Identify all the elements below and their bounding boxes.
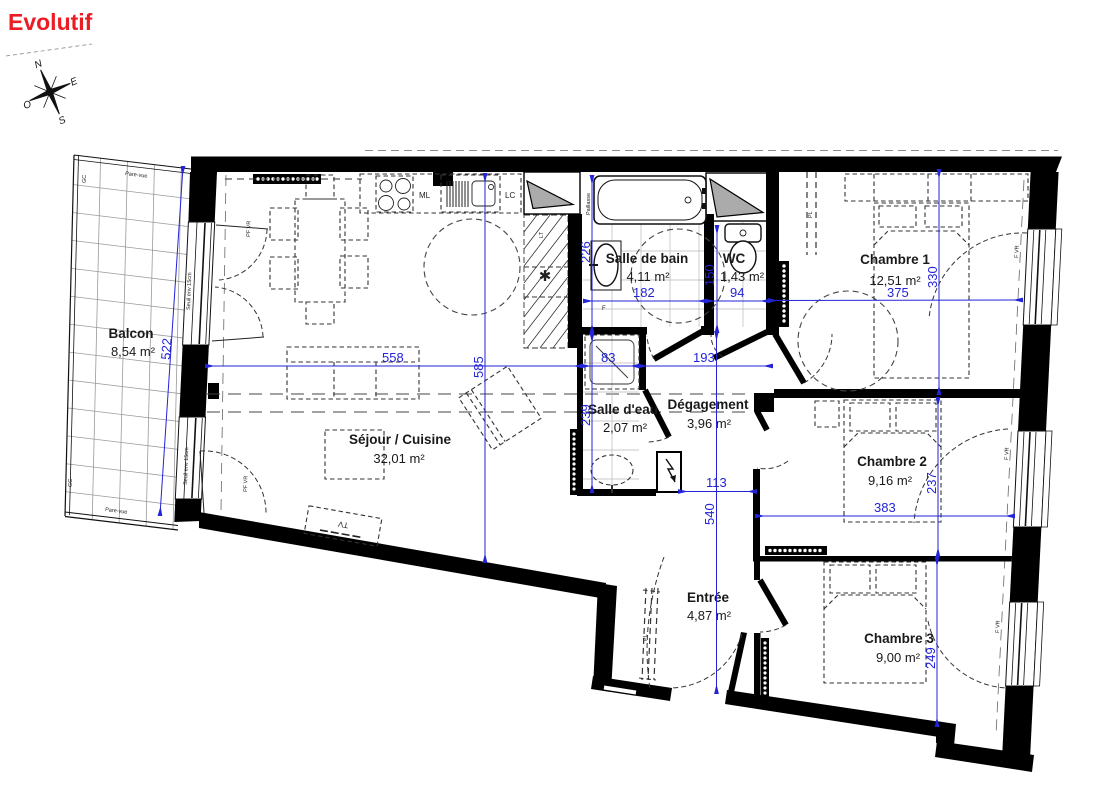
svg-text:Dégagement: Dégagement: [667, 397, 749, 412]
svg-text:226: 226: [578, 241, 593, 263]
svg-text:GC: GC: [68, 479, 74, 487]
svg-text:Paillasse: Paillasse: [586, 193, 592, 215]
svg-text:9,00 m²: 9,00 m²: [876, 650, 921, 665]
svg-text:PF VR: PF VR: [246, 221, 253, 237]
svg-text:3,96 m²: 3,96 m²: [687, 416, 732, 431]
svg-text:Entrée: Entrée: [687, 590, 730, 605]
svg-text:1,43 m²: 1,43 m²: [720, 269, 765, 284]
svg-text:Balcon: Balcon: [108, 326, 153, 341]
svg-text:GC: GC: [82, 175, 88, 183]
svg-text:32,01 m²: 32,01 m²: [373, 451, 425, 466]
svg-text:540: 540: [702, 503, 717, 525]
svg-text:113: 113: [706, 475, 727, 490]
svg-text:PL: PL: [808, 211, 814, 218]
svg-text:94: 94: [730, 285, 744, 300]
svg-text:ML: ML: [419, 191, 431, 200]
svg-text:Evolutif: Evolutif: [8, 9, 93, 35]
svg-text:Chambre 3: Chambre 3: [864, 631, 934, 646]
svg-text:2,07 m²: 2,07 m²: [603, 420, 648, 435]
svg-text:Chambre 1: Chambre 1: [860, 252, 930, 267]
svg-text:239: 239: [578, 404, 593, 426]
svg-text:4,11 m²: 4,11 m²: [626, 269, 670, 284]
svg-text:Chambre 2: Chambre 2: [857, 454, 927, 469]
svg-text:193: 193: [693, 350, 715, 365]
svg-text:F VR: F VR: [995, 620, 1002, 633]
svg-text:Salle de bain: Salle de bain: [606, 251, 689, 266]
svg-text:375: 375: [887, 285, 909, 300]
svg-text:249: 249: [923, 647, 938, 669]
svg-text:585: 585: [471, 356, 486, 378]
svg-text:LC: LC: [505, 191, 515, 200]
svg-text:Séjour / Cuisine: Séjour / Cuisine: [349, 432, 452, 447]
svg-text:383: 383: [874, 500, 896, 515]
svg-text:✱: ✱: [539, 268, 552, 285]
svg-text:F VR: F VR: [1014, 245, 1021, 258]
svg-text:LT: LT: [539, 231, 545, 238]
svg-text:83: 83: [601, 350, 615, 365]
svg-text:8,54 m²: 8,54 m²: [111, 344, 156, 359]
svg-text:WC: WC: [723, 251, 746, 266]
svg-text:558: 558: [382, 350, 404, 365]
svg-text:330: 330: [925, 266, 940, 288]
svg-text:4,87 m²: 4,87 m²: [687, 608, 732, 623]
svg-text:PL: PL: [643, 634, 649, 641]
svg-text:150: 150: [702, 264, 717, 286]
svg-text:237: 237: [924, 472, 939, 494]
svg-text:Salle d'eau: Salle d'eau: [588, 402, 658, 417]
svg-text:PF VR: PF VR: [243, 476, 250, 492]
svg-text:F: F: [602, 306, 606, 312]
svg-text:182: 182: [633, 285, 655, 300]
svg-text:9,16 m²: 9,16 m²: [868, 473, 913, 488]
svg-text:522: 522: [158, 338, 174, 361]
